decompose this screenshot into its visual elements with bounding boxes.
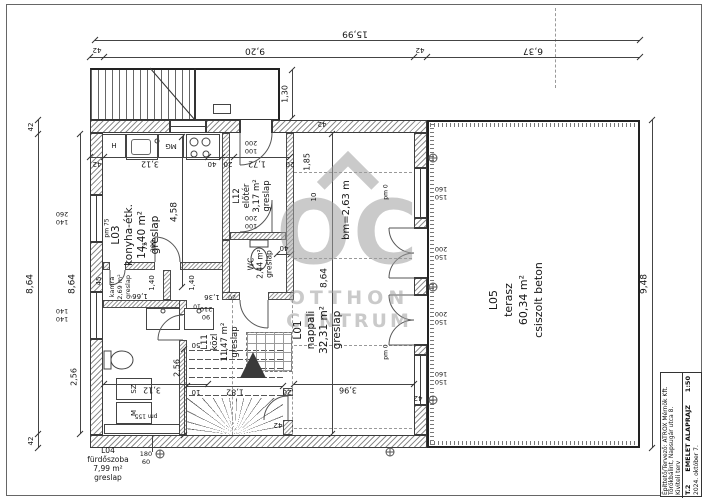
landing-note-box — [213, 104, 231, 114]
entrance-door-opening — [240, 120, 272, 133]
washing-machine — [116, 402, 152, 424]
wall-segment — [125, 262, 155, 270]
window — [170, 120, 206, 133]
title-scale: 1:50 — [685, 376, 693, 392]
wall-segment — [222, 292, 240, 300]
dimension-line — [294, 384, 414, 385]
terrace-edge-top — [430, 123, 637, 127]
dimension-line — [104, 384, 208, 385]
watermark-line1: OTTHON — [289, 287, 409, 309]
dimension-line — [95, 40, 640, 41]
wall-segment — [179, 340, 187, 435]
window — [90, 292, 103, 339]
dimension-line — [187, 386, 283, 387]
title-sheet-title: EMELET ALAPRAJZ — [685, 405, 693, 472]
wall-segment — [163, 270, 171, 300]
washbasin — [184, 308, 214, 330]
dimension-line — [90, 157, 290, 158]
dimension-line — [292, 70, 293, 118]
section-line — [555, 8, 556, 88]
dimension-line — [182, 137, 183, 287]
fridge — [102, 134, 126, 158]
wall-segment — [414, 133, 427, 168]
entrance-landing — [195, 68, 280, 120]
wall-segment — [90, 435, 427, 448]
wall-segment — [222, 133, 230, 240]
washbasin — [146, 308, 180, 330]
bathtub — [104, 424, 180, 434]
terrace-edge-bottom — [430, 441, 637, 445]
wall-segment — [272, 120, 427, 133]
window — [90, 195, 103, 242]
leader-line — [152, 436, 153, 452]
floor-opening-grid — [246, 332, 292, 372]
window — [414, 355, 427, 405]
dimension-line — [652, 120, 653, 448]
title-block-content: Építtető/Tervező: ATROX Mérnök Kft. Törö… — [661, 373, 703, 498]
title-date: 2024. október 7. — [693, 376, 701, 495]
stair-winder-fan — [187, 398, 283, 435]
wall-segment — [90, 120, 170, 133]
wall-segment — [103, 262, 110, 270]
dimension-line — [184, 349, 185, 435]
dimension-line — [38, 120, 39, 448]
wall-segment — [414, 345, 427, 355]
dashed-line — [232, 300, 233, 435]
title-block: Építtető/Tervező: ATROX Mérnök Kft. Törö… — [660, 372, 702, 497]
dishwasher — [158, 134, 184, 158]
terrace-outline — [427, 120, 640, 448]
exterior-stair-deck — [90, 68, 195, 120]
terrace-edge-left — [430, 123, 434, 445]
wall-segment — [206, 120, 240, 133]
dimension-line — [90, 57, 640, 58]
watermark-line2: CENTRUM — [286, 310, 412, 332]
wall-segment — [90, 242, 103, 292]
dimension-line — [80, 134, 81, 434]
floor-plan-canvas: OC OTTHON CENTRUM L03konyha-étk.14,40 m²… — [0, 0, 707, 500]
wall-segment — [90, 339, 103, 435]
watermark-monogram: OC — [276, 182, 419, 285]
terrace-door-opening — [414, 295, 427, 345]
dashed-line — [294, 428, 412, 429]
dashed-line — [294, 345, 412, 346]
title-sheet-number: T.2 — [685, 485, 693, 495]
wall-segment — [103, 300, 187, 308]
kitchen-sink-basin — [131, 139, 151, 155]
wall-segment — [222, 240, 230, 300]
dryer — [116, 378, 152, 400]
wall-segment — [414, 405, 427, 435]
